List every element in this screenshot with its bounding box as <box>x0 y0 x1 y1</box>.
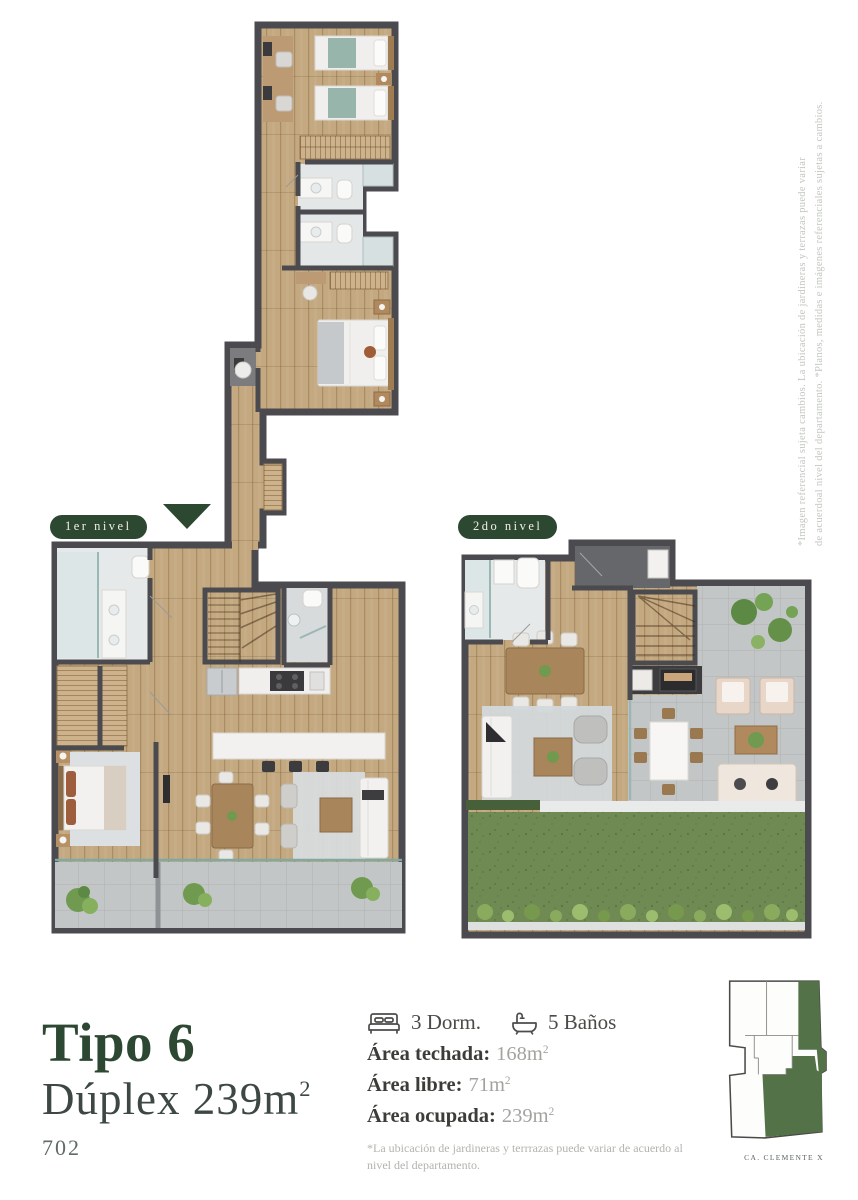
area-techada-line: Área techada:168m2 <box>367 1043 715 1066</box>
area-ocupada-value: 239m <box>502 1105 549 1127</box>
bathrooms-label: 5 Baños <box>548 1010 616 1035</box>
level1-guest-bathroom <box>284 588 328 662</box>
specs-footnote: *La ubicación de jardineras y terrrazas … <box>367 1140 703 1175</box>
unit-number: 702 <box>42 1135 372 1161</box>
walk-in-closets <box>57 666 127 746</box>
entry-hall <box>575 546 670 588</box>
area-libre-label: Área libre: <box>367 1074 462 1096</box>
floor-plan-level2 <box>458 538 813 950</box>
specs-block: 3 Dorm. 5 Baños Área techada:168m2 Área … <box>367 1010 715 1175</box>
brochure-page: 1er nivel 2do nivel *Imagen referencial … <box>0 0 858 1200</box>
level2-badge-label: 2do nivel <box>473 519 542 533</box>
side-disclaimer-line1: *Imagen referencial sujeta cambios. La u… <box>794 26 811 546</box>
entrance-arrow-icon <box>163 504 211 529</box>
area-ocupada-label: Área ocupada: <box>367 1105 496 1127</box>
corridor-closet <box>264 464 282 510</box>
title-block: Tipo 6 Dúplex 239m2 702 <box>42 1014 372 1161</box>
keyplan: CA. CLEMENTE X <box>726 976 842 1162</box>
kitchen <box>207 668 330 695</box>
floor-plan-level1 <box>45 538 410 948</box>
upper-bathrooms <box>298 164 393 268</box>
area-ocupada-line: Área ocupada:239m2 <box>367 1105 715 1128</box>
entry-opening <box>232 539 258 550</box>
side-disclaimer: *Imagen referencial sujeta cambios. La u… <box>794 26 830 546</box>
bed-icon <box>367 1011 401 1035</box>
rooms-row: 3 Dorm. 5 Baños <box>367 1010 715 1035</box>
level1-terrace <box>55 860 402 928</box>
level1-badge-label: 1er nivel <box>65 519 132 533</box>
area-libre-line: Área libre:71m2 <box>367 1074 715 1097</box>
keyplan-diagram <box>726 976 842 1140</box>
level2-bathroom <box>465 558 545 640</box>
level2-stairs <box>633 592 695 663</box>
keyplan-street-caption: CA. CLEMENTE X <box>726 1153 842 1162</box>
unit-subtitle-text: Dúplex 239m <box>42 1074 299 1124</box>
level1-badge: 1er nivel <box>50 515 147 539</box>
level1-stairs <box>205 590 278 662</box>
grass-lawn <box>468 812 805 930</box>
unit-subtitle-sup: 2 <box>299 1076 311 1101</box>
area-techada-value: 168m <box>496 1043 543 1065</box>
area-techada-label: Área techada: <box>367 1043 490 1065</box>
level1-main-bathroom <box>57 548 149 660</box>
level2-living <box>482 706 612 806</box>
side-disclaimer-line2: de acuerdoal nivel del departamento. *Pl… <box>811 26 828 546</box>
area-libre-value: 71m <box>468 1074 504 1096</box>
floor-plan-upper-wing <box>210 20 410 550</box>
unit-subtitle: Dúplex 239m2 <box>42 1076 372 1123</box>
terrace-kitchenette <box>628 666 702 694</box>
walkway-strip <box>540 801 805 812</box>
bedrooms-label: 3 Dorm. <box>411 1010 481 1035</box>
level2-badge: 2do nivel <box>458 515 557 539</box>
hedge-strip <box>466 800 540 810</box>
bath-icon <box>511 1011 538 1035</box>
unit-type-title: Tipo 6 <box>42 1014 372 1072</box>
